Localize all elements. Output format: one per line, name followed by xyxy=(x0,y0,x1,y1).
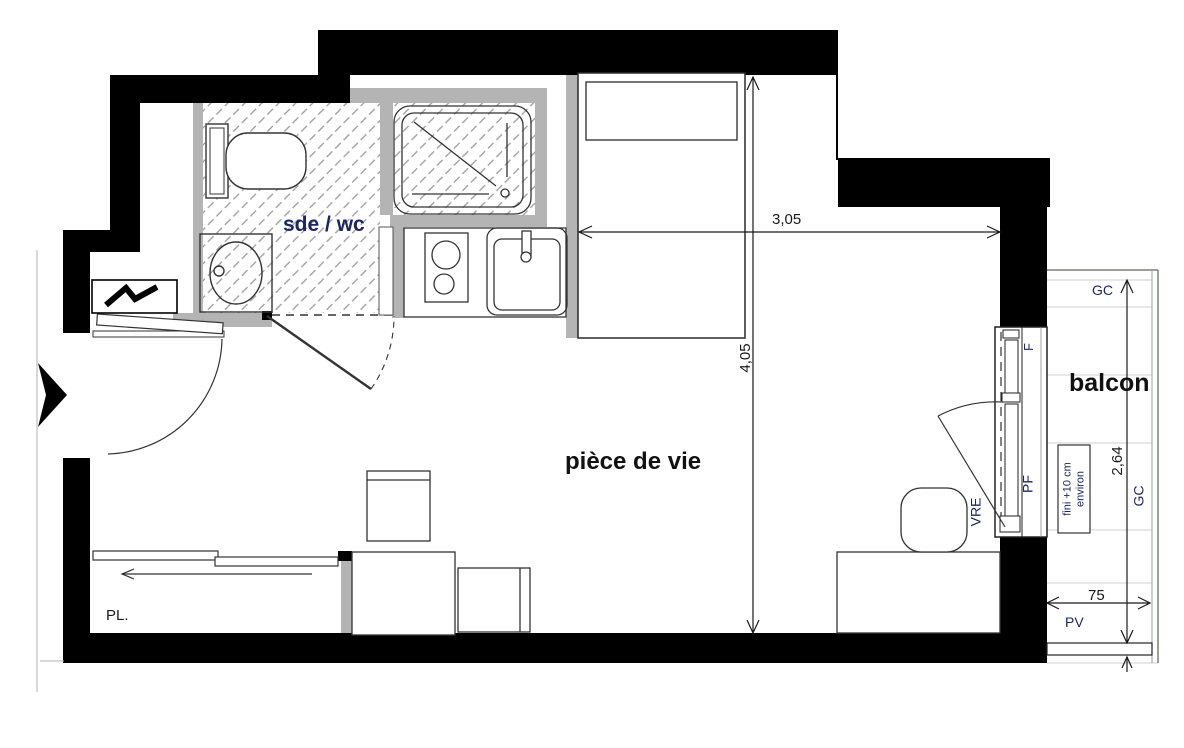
dim-balcony-depth: 2,64 xyxy=(1110,446,1126,475)
closet-sliding-doors xyxy=(93,551,338,579)
dim-living-width: 3,05 xyxy=(772,212,801,228)
balcony-slab-edge xyxy=(1047,643,1152,655)
extension-lines xyxy=(37,250,64,692)
chair-top xyxy=(367,471,430,541)
bathroom-door xyxy=(267,315,394,389)
bed xyxy=(578,73,745,338)
toilet xyxy=(206,124,306,198)
table xyxy=(352,552,455,635)
entrance-arrow-icon xyxy=(38,363,67,427)
gc-side-label: GC xyxy=(1132,486,1147,507)
finish-note-line2: environ xyxy=(1074,471,1086,507)
entrance-door xyxy=(93,314,224,454)
window-fixed-label: F xyxy=(1022,343,1036,351)
finish-note: fini +10 cm environ xyxy=(1061,462,1086,516)
balcony-label: balcon xyxy=(1069,370,1150,396)
balcony-window xyxy=(995,327,1047,537)
closet-label: PL. xyxy=(106,608,129,624)
living-room-label: pièce de vie xyxy=(565,449,701,474)
pv-label: PV xyxy=(1065,615,1084,630)
desk-chair xyxy=(901,488,967,552)
desk xyxy=(837,552,1000,633)
kitchen-counter xyxy=(379,227,566,317)
dim-balcony-rail-width: 75 xyxy=(1088,588,1105,604)
chair-right xyxy=(458,568,530,632)
gc-top-label: GC xyxy=(1092,283,1113,298)
shutter-label: VRE xyxy=(969,498,984,527)
window-door-label: PF xyxy=(1021,475,1036,493)
floor-plan: sde / wc pièce de vie balcon PL. 3,05 4,… xyxy=(0,0,1184,748)
floor-plan-drawing xyxy=(0,0,1184,748)
bathroom-label: sde / wc xyxy=(283,214,365,236)
dim-living-height: 4,05 xyxy=(738,343,754,372)
finish-note-line1: fini +10 cm xyxy=(1061,462,1073,516)
electrical-panel xyxy=(92,280,177,313)
